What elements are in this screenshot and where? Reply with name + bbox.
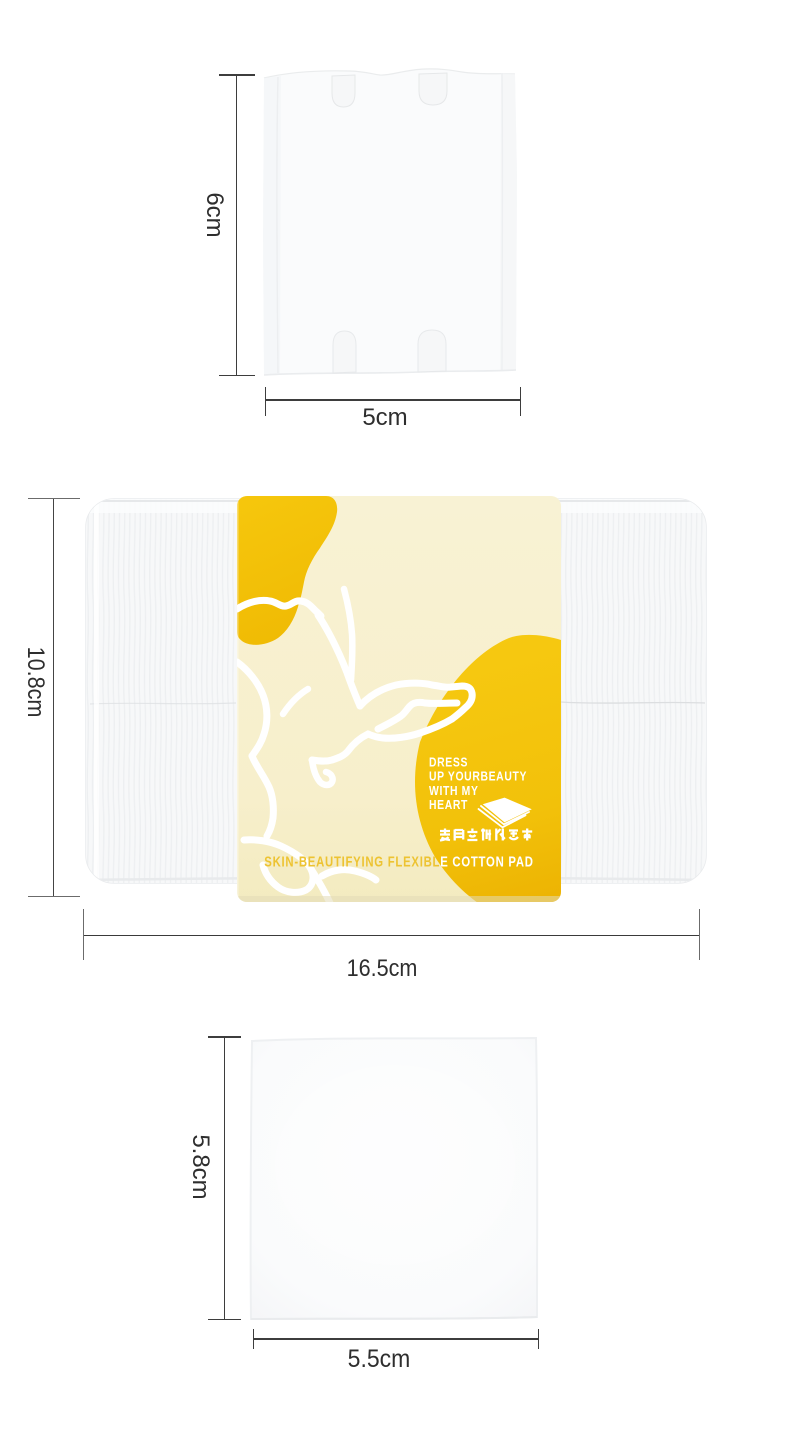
svg-text:DRESS: DRESS xyxy=(429,755,468,769)
svg-text:UP YOURBEAUTY: UP YOURBEAUTY xyxy=(429,770,527,784)
svg-text:WITH MY: WITH MY xyxy=(429,784,479,798)
svg-text:HEART: HEART xyxy=(429,798,468,812)
